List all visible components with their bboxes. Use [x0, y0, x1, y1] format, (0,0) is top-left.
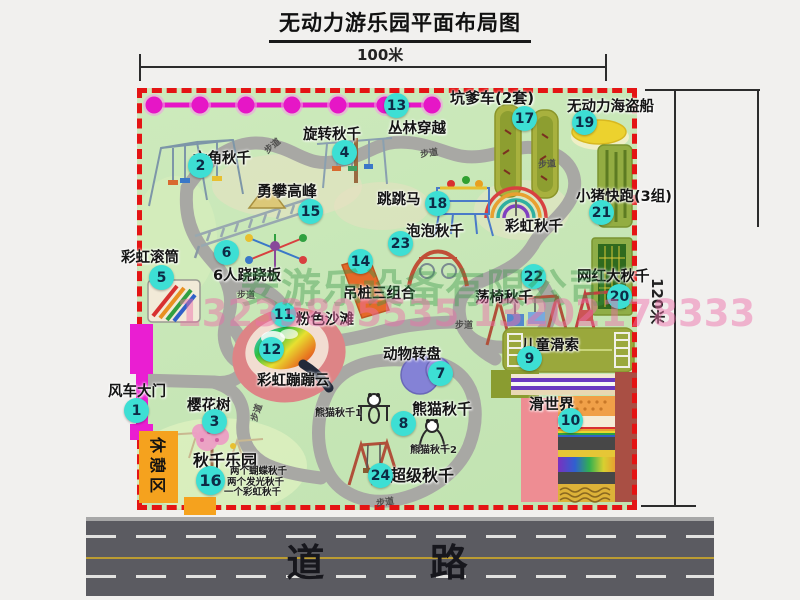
badge-kengdie-car: 17	[512, 106, 537, 131]
windmill-gate-graphic	[130, 324, 153, 374]
label-bubble-swing: 泡泡秋千	[406, 220, 464, 241]
screenshot-canvas: 无动力游乐园平面布局图 100米 120米	[0, 0, 800, 600]
label-rotating-swing: 旋转秋千	[303, 123, 361, 144]
badge-jumping-horse: 18	[425, 191, 450, 216]
badge-swing-park: 16	[196, 466, 225, 495]
height-dimension-tick-bottom	[641, 505, 696, 507]
rest-area-label: 休憩区	[147, 437, 171, 497]
rest-area: 休憩区	[139, 431, 178, 503]
badge-jungle-crossing: 13	[384, 93, 409, 118]
walkway-label: 步道	[375, 494, 395, 509]
badge-piggy-run: 21	[589, 200, 614, 225]
badge-six-person-seesaw: 6	[214, 240, 239, 265]
label-panda-swing: 熊猫秋千	[412, 398, 472, 419]
width-dimension-tick-left	[139, 54, 141, 81]
badge-slide-world: 10	[558, 408, 583, 433]
walkway-label: 步道	[537, 156, 556, 171]
badge-rainbow-bounce-cloud: 12	[259, 337, 284, 362]
badge-kids-zipline: 9	[517, 346, 542, 371]
swing-park-note-3: 一个彩虹秋千	[224, 488, 287, 499]
badge-animal-carousel: 7	[428, 361, 453, 386]
road-label: 道 路	[286, 532, 513, 587]
label-panda-swing-1: 熊猫秋千1	[315, 404, 362, 419]
height-dimension-tick-top	[645, 89, 760, 91]
label-piggy-run: 小猪快跑(3组)	[576, 185, 672, 206]
swing-park-note-1: 两个蝴蝶秋千	[230, 467, 287, 478]
label-kengdie-car: 坑爹车(2套)	[450, 87, 534, 108]
badge-pirate-ship: 19	[572, 110, 597, 135]
rest-bench-graphic	[184, 497, 216, 515]
badge-bubble-swing: 23	[388, 231, 413, 256]
label-rainbow-swing: 彩虹秋千	[505, 215, 563, 236]
road: 道 路	[86, 517, 714, 596]
badge-panda-swing: 8	[391, 411, 416, 436]
label-rainbow-roller: 彩虹滚筒	[121, 246, 179, 267]
badge-hexagon-swing: 2	[188, 153, 213, 178]
walkway-label: 步道	[419, 145, 439, 160]
label-super-swing: 超级秋千	[390, 462, 454, 486]
badge-windmill-gate: 1	[124, 398, 149, 423]
height-dimension-extension	[757, 89, 759, 227]
width-dimension-line	[140, 66, 607, 68]
label-jumping-horse: 跳跳马	[377, 188, 421, 209]
badge-climbing-peak: 15	[298, 199, 323, 224]
width-dimension-tick-right	[605, 54, 607, 81]
slide-world-graphic	[491, 370, 637, 502]
badge-cherry-tree: 3	[202, 409, 227, 434]
badge-rainbow-roller: 5	[149, 265, 174, 290]
label-panda-swing-2: 熊猫秋千2	[410, 441, 457, 456]
width-dimension-label: 100米	[357, 44, 403, 65]
watermark-phones: 13233805535 13202178333	[176, 292, 755, 335]
badge-rotating-swing: 4	[332, 140, 357, 165]
badge-super-swing: 24	[368, 463, 393, 488]
label-jungle-crossing: 丛林穿越	[388, 117, 446, 138]
page-title: 无动力游乐园平面布局图	[269, 7, 531, 43]
swing-park-notes: 两个蝴蝶秋千 两个发光秋千 一个彩虹秋千	[230, 467, 287, 499]
label-rainbow-bounce-cloud: 彩虹蹦蹦云	[257, 369, 330, 390]
label-animal-carousel: 动物转盘	[383, 343, 441, 364]
label-climbing-peak: 勇攀高峰	[257, 180, 317, 201]
